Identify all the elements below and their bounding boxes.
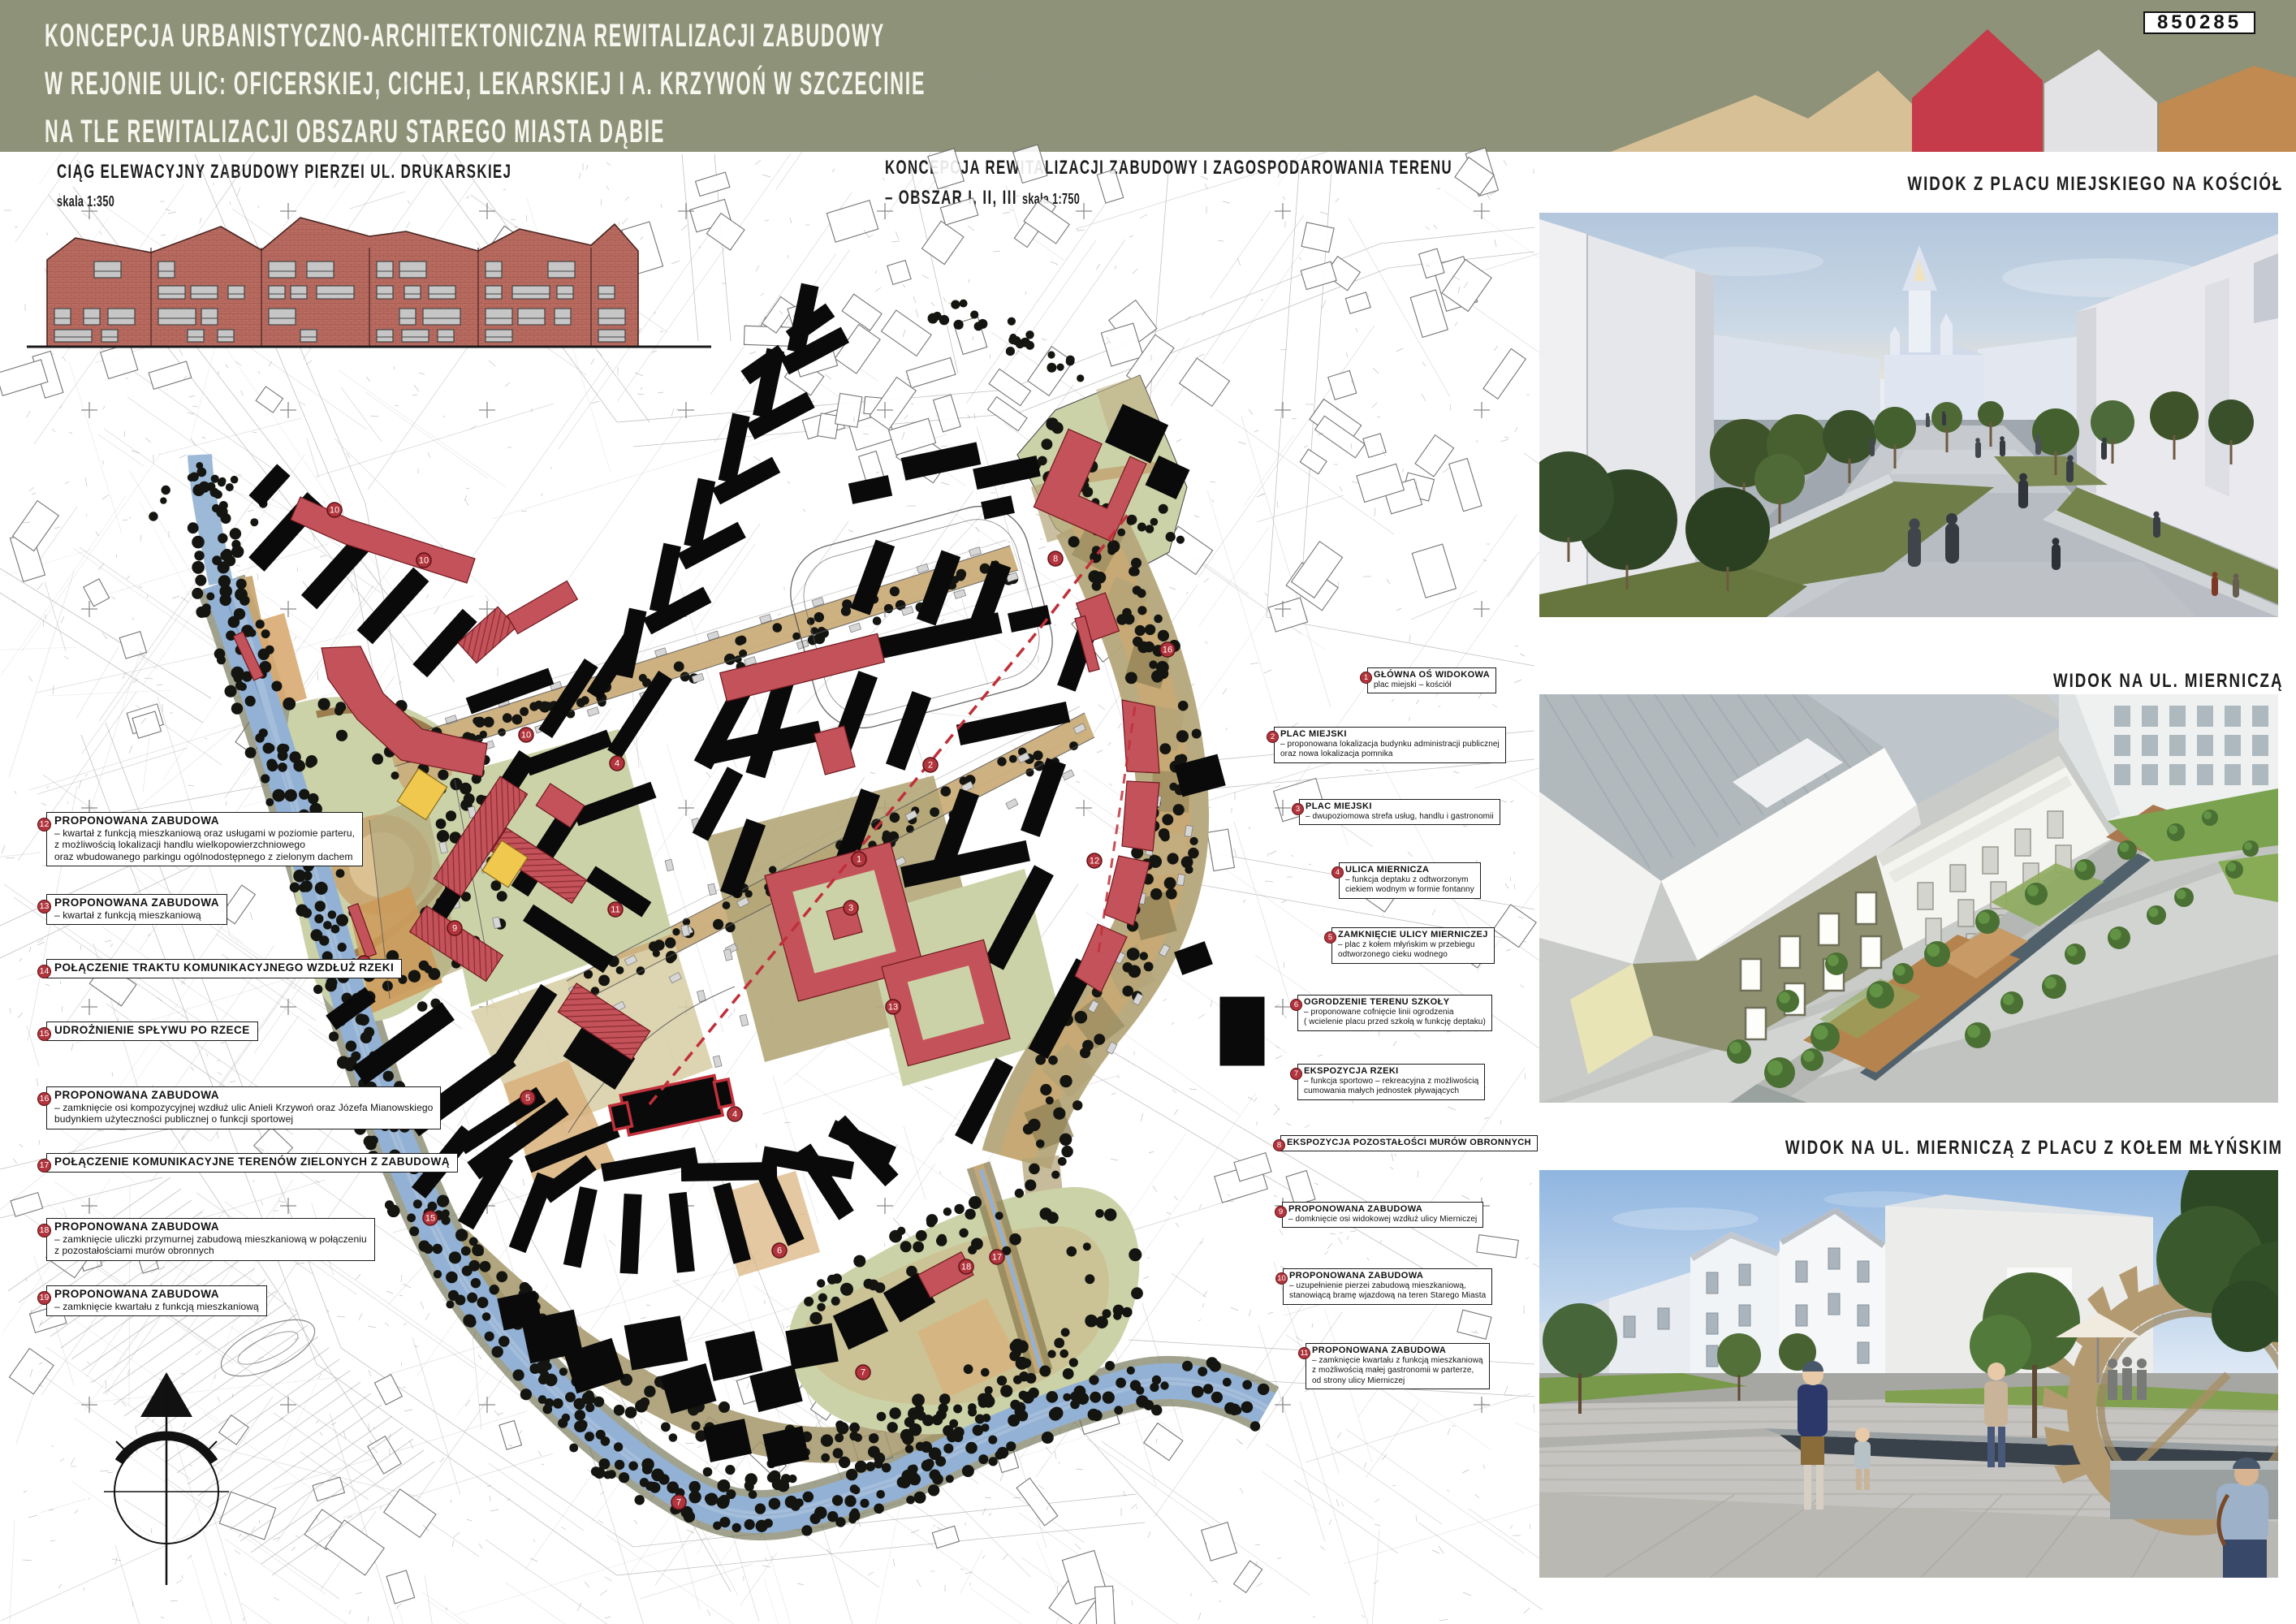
svg-text:6: 6 bbox=[777, 1246, 782, 1256]
svg-text:1: 1 bbox=[857, 855, 861, 865]
svg-text:2: 2 bbox=[928, 761, 933, 771]
svg-text:9: 9 bbox=[452, 924, 457, 934]
svg-text:13: 13 bbox=[888, 1003, 898, 1013]
svg-text:11: 11 bbox=[611, 905, 619, 915]
svg-text:4: 4 bbox=[615, 759, 619, 769]
svg-text:15: 15 bbox=[425, 1214, 435, 1224]
svg-text:18: 18 bbox=[961, 1263, 971, 1272]
svg-text:10: 10 bbox=[521, 731, 531, 741]
svg-text:17: 17 bbox=[992, 1253, 1002, 1263]
svg-text:10: 10 bbox=[330, 506, 339, 516]
svg-text:10: 10 bbox=[419, 556, 429, 566]
svg-text:5: 5 bbox=[525, 1094, 530, 1104]
svg-text:7: 7 bbox=[676, 1498, 681, 1508]
svg-text:8: 8 bbox=[1053, 555, 1058, 564]
svg-text:4: 4 bbox=[732, 1110, 737, 1120]
svg-text:12: 12 bbox=[1090, 857, 1099, 866]
svg-text:7: 7 bbox=[861, 1368, 865, 1378]
svg-text:3: 3 bbox=[848, 904, 853, 914]
svg-text:16: 16 bbox=[1163, 646, 1172, 655]
